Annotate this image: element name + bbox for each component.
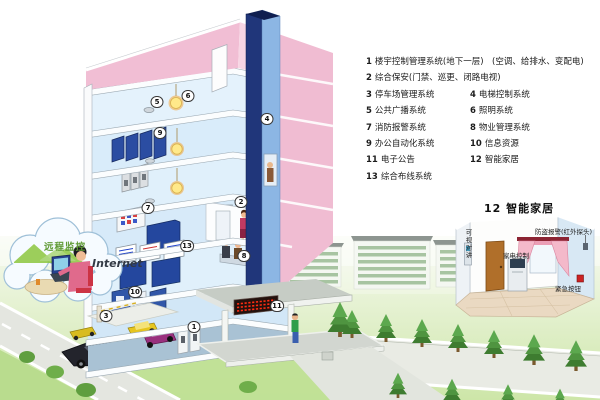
legend-item-label: 电梯控制系统 xyxy=(479,90,530,100)
systems-legend: 1楼宇控制管理系统(地下一层) (空调、给排水、变配电) 2综合保安(门禁、巡更… xyxy=(366,54,598,185)
badge-building-control: 1 xyxy=(188,321,201,333)
legend-item-label: 综合保安(门禁、巡更、闭路电视) xyxy=(375,73,501,83)
legend-item-label: 电子公告 xyxy=(381,155,415,165)
badge-broadcast: 5 xyxy=(151,96,164,108)
legend-item: 7消防报警系统 xyxy=(366,120,468,136)
legend-item-number: 9 xyxy=(366,139,372,149)
internet-label: Internet xyxy=(92,257,143,270)
legend-item-label: 物业管理系统 xyxy=(479,123,530,133)
legend-item-label: 消防报警系统 xyxy=(375,123,426,133)
legend-item: 1楼宇控制管理系统(地下一层) (空调、给排水、变配电) xyxy=(366,54,598,70)
legend-item-label: 停车场管理系统 xyxy=(375,90,435,100)
appliance-control-label: 家电控制 xyxy=(503,250,529,260)
legend-item-label: 智能家居 xyxy=(485,155,519,165)
emergency-button-label: 紧急按钮 xyxy=(555,283,581,293)
legend-item-label: 照明系统 xyxy=(479,106,513,116)
legend-item: 2综合保安(门禁、巡更、闭路电视) xyxy=(366,70,598,86)
legend-item-number: 10 xyxy=(470,139,482,149)
legend-item-number: 4 xyxy=(470,90,476,100)
legend-item: 10信息资源 xyxy=(470,136,598,152)
badge-elevator: 4 xyxy=(261,113,274,125)
legend-item-number: 8 xyxy=(470,123,476,133)
burglar-alarm-label: 防盗报警(红外探头) xyxy=(535,226,592,236)
legend-item: 13综合布线系统 xyxy=(366,169,598,185)
legend-item-number: 6 xyxy=(470,106,476,116)
badge-e-notice: 11 xyxy=(270,300,284,312)
legend-item-label: 信息资源 xyxy=(485,139,519,149)
remote-monitoring-label: 远程监控 xyxy=(44,239,86,253)
legend-item-label: 综合布线系统 xyxy=(381,172,432,182)
badge-office-automation: 9 xyxy=(154,127,167,139)
legend-item-number: 7 xyxy=(366,123,372,133)
legend-item-number: 1 xyxy=(366,57,372,67)
badge-property: 8 xyxy=(238,250,251,262)
legend-item-label: 办公自动化系统 xyxy=(375,139,435,149)
legend-item-label: 楼宇控制管理系统(地下一层) (空调、给排水、变配电) xyxy=(375,57,584,67)
badge-security: 2 xyxy=(235,196,248,208)
legend-item: 9办公自动化系统 xyxy=(366,136,468,152)
legend-item: 4电梯控制系统 xyxy=(470,87,598,103)
legend-item: 3停车场管理系统 xyxy=(366,87,468,103)
smart-building-diagram: 1楼宇控制管理系统(地下一层) (空调、给排水、变配电) 2综合保安(门禁、巡更… xyxy=(0,0,600,400)
legend-item-number: 5 xyxy=(366,106,372,116)
badge-cabling: 13 xyxy=(180,240,194,252)
badge-fire-alarm: 7 xyxy=(142,202,155,214)
legend-item-number: 11 xyxy=(366,155,378,165)
legend-item-label: 公共广播系统 xyxy=(375,106,426,116)
legend-item-number: 13 xyxy=(366,172,378,182)
video-intercom-label: 可视对讲 xyxy=(463,229,473,259)
legend-item-number: 2 xyxy=(366,73,372,83)
legend-item: 12智能家居 xyxy=(470,152,598,168)
badge-parking: 3 xyxy=(100,310,113,322)
legend-item: 11电子公告 xyxy=(366,152,468,168)
legend-item-number: 12 xyxy=(470,155,482,165)
badge-lighting: 6 xyxy=(182,90,195,102)
smart-home-title: 12 智能家居 xyxy=(484,200,554,216)
legend-item-number: 3 xyxy=(366,90,372,100)
legend-item: 6照明系统 xyxy=(470,103,598,119)
legend-item: 8物业管理系统 xyxy=(470,120,598,136)
badge-information: 10 xyxy=(128,286,142,298)
legend-item: 5公共广播系统 xyxy=(366,103,468,119)
elevator-shaft xyxy=(246,10,280,308)
